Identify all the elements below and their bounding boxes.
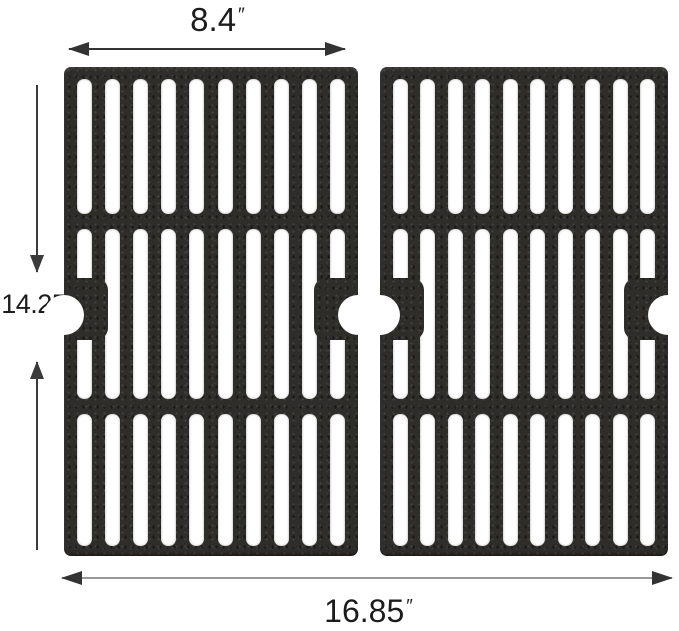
grate-slot: [302, 79, 317, 214]
arrowhead-left-icon: [68, 42, 89, 56]
arrowhead-right-icon: [325, 42, 346, 56]
grate-slot: [530, 229, 545, 399]
grate-slot: [246, 414, 261, 546]
grate-slot: [558, 79, 573, 214]
grate-slot: [503, 79, 518, 214]
product-dimension-diagram: 8.4″ 14.25″ 16.85″: [0, 0, 679, 631]
total-width-arrow: [62, 577, 672, 579]
arrowhead-up-icon: [30, 361, 44, 379]
grate-slot: [218, 414, 233, 546]
arrow-line: [69, 48, 345, 50]
grate-slot: [246, 229, 261, 399]
slot-row-top: [393, 79, 655, 214]
grate-slot: [420, 79, 435, 214]
grate-slot: [585, 79, 600, 214]
grate-slot: [530, 414, 545, 546]
total-width-label: 16.85″: [218, 595, 518, 627]
grate-slot: [133, 79, 148, 214]
grate-slot: [302, 414, 317, 546]
grate-slot: [393, 414, 408, 546]
grate-slot: [105, 414, 120, 546]
grate-slot: [503, 229, 518, 399]
inch-mark: ″: [238, 5, 244, 26]
panel-width-label: 8.4″: [79, 3, 355, 36]
grate-panel-left: [64, 67, 358, 556]
panel-width-value: 8.4: [190, 1, 236, 38]
grate-slot: [330, 414, 345, 546]
slot-row-bottom: [393, 414, 655, 546]
grate-slot: [161, 229, 176, 399]
arrow-line: [62, 577, 672, 579]
grate-slot: [189, 414, 204, 546]
grate-slot: [105, 79, 120, 214]
grate-slot: [246, 79, 261, 214]
grate-slot: [274, 414, 289, 546]
grate-slot: [503, 414, 518, 546]
grate-slot: [77, 79, 92, 214]
grate-slot: [274, 229, 289, 399]
grate-slot: [640, 414, 655, 546]
grate-slot: [420, 414, 435, 546]
grate-slot: [274, 79, 289, 214]
grate-slot: [613, 79, 628, 214]
slot-row-top: [77, 79, 345, 214]
grate-slot: [585, 414, 600, 546]
grate-slot: [448, 229, 463, 399]
slot-row-bottom: [77, 414, 345, 546]
inch-mark: ″: [406, 595, 412, 616]
panel-height-arrow-lower: [36, 362, 38, 550]
grate-slot: [448, 79, 463, 214]
grate-slot: [640, 79, 655, 214]
grate-slot: [330, 79, 345, 214]
edge-notch: [44, 295, 84, 335]
edge-notch: [360, 295, 400, 335]
grate-slot: [218, 79, 233, 214]
grate-slot: [161, 414, 176, 546]
grate-slot: [189, 229, 204, 399]
grate-slot: [558, 229, 573, 399]
grate-slot: [613, 414, 628, 546]
arrowhead-down-icon: [30, 255, 44, 273]
panel-height-arrow-upper: [36, 85, 38, 272]
grate-slot: [218, 229, 233, 399]
arrowhead-right-icon: [652, 571, 673, 585]
grate-slot: [189, 79, 204, 214]
grate-slot: [393, 79, 408, 214]
grate-slot: [558, 414, 573, 546]
grate-slot: [475, 414, 490, 546]
grate-slot: [585, 229, 600, 399]
grate-slot: [133, 229, 148, 399]
grate-slot: [475, 229, 490, 399]
grate-slot: [448, 414, 463, 546]
grate-slot: [475, 79, 490, 214]
panel-width-arrow: [69, 48, 345, 50]
arrowhead-left-icon: [61, 571, 82, 585]
grate-slot: [161, 79, 176, 214]
slot-row-middle: [393, 229, 655, 399]
total-width-value: 16.85: [324, 593, 404, 629]
grate-panel-right: [380, 67, 668, 556]
slot-row-middle: [77, 229, 345, 399]
grate-slot: [530, 79, 545, 214]
grate-slot: [77, 414, 92, 546]
grate-slot: [133, 414, 148, 546]
